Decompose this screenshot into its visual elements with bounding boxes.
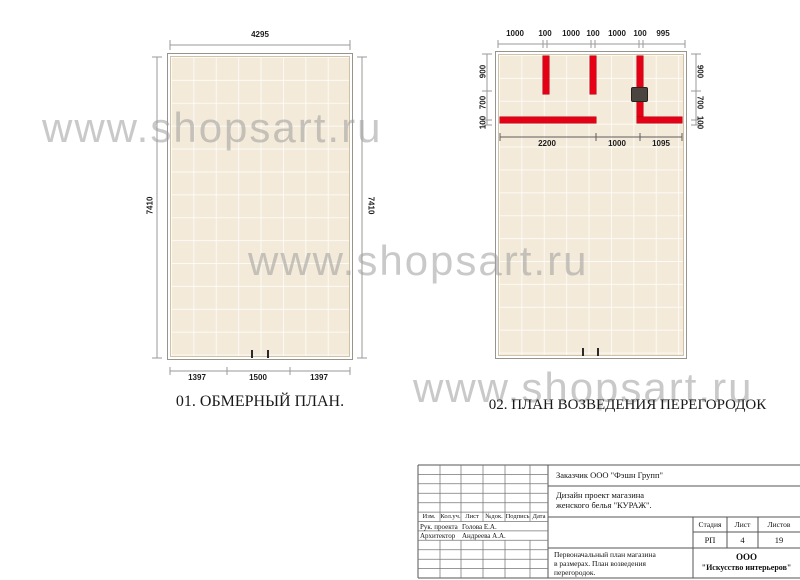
- plan1-dim-right: 7410: [367, 186, 376, 226]
- titleblock-project-line1: Дизайн проект магазина: [556, 490, 644, 500]
- plan2-dim-inner: 1095: [631, 139, 691, 148]
- plan2-walls: [495, 51, 687, 359]
- plan2-dim-right: 100: [696, 108, 705, 138]
- titleblock-col-koluch: Кол.уч.: [440, 513, 461, 520]
- titleblock-name-2: Андреева А.А.: [462, 532, 506, 540]
- plan2-partition-vertical-2: [590, 56, 596, 94]
- plan1-dim-bottom: 1500: [233, 373, 283, 382]
- plan1-dim-bottom: 1397: [294, 373, 344, 382]
- titleblock-desc-line3: перегородок.: [554, 568, 595, 577]
- titleblock-stage-value: РП: [693, 535, 727, 545]
- titleblock-name-1: Голова Е.А.: [462, 523, 497, 531]
- plan2-partition-vertical-1: [543, 56, 549, 94]
- plan2-door-symbol: [631, 87, 648, 102]
- plan1-title: 01. ОБМЕРНЫЙ ПЛАН.: [140, 393, 380, 411]
- titleblock-desc-line1: Первоначальный план магазина: [554, 550, 656, 559]
- plan1-dim-bottom: 1397: [172, 373, 222, 382]
- plan2-floor: [498, 54, 684, 356]
- titleblock-company-line2: "Искусство интерьеров": [693, 563, 800, 572]
- titleblock-sheets-label: Листов: [758, 520, 800, 529]
- plan2-dim-top: 995: [646, 29, 680, 38]
- plan1-entrance-tick: [267, 350, 269, 358]
- plan2-entrance-tick: [582, 348, 584, 356]
- titleblock-company-line1: ООО: [693, 552, 800, 562]
- titleblock-col-izm: Изм.: [418, 513, 440, 520]
- plan1-floor: [170, 56, 350, 357]
- titleblock-sheet-label: Лист: [727, 520, 758, 529]
- titleblock-customer: Заказчик ООО "Фэшн Групп": [556, 470, 663, 480]
- plan2-entrance-tick: [597, 348, 599, 356]
- titleblock-col-list: Лист: [461, 513, 483, 520]
- plan2-partition-horizontal-left: [500, 117, 596, 123]
- titleblock-col-ndok: №док.: [483, 513, 505, 520]
- titleblock-role-2: Архитектор: [420, 532, 455, 540]
- plan1-dim-top: 4295: [230, 30, 290, 39]
- plan1-entrance-tick: [251, 350, 253, 358]
- plan2-dim-left: 100: [479, 108, 488, 138]
- plan2-dim-left: 900: [479, 57, 488, 87]
- titleblock-desc-line2: в размерах. План возведения: [554, 559, 646, 568]
- plan1-dim-left: 7410: [146, 186, 155, 226]
- titleblock-col-podpis: Подпись: [505, 513, 530, 520]
- titleblock-sheet-value: 4: [727, 535, 758, 545]
- titleblock-stage-label: Стадия: [693, 520, 727, 529]
- plan2-dim-inner: 2200: [517, 139, 577, 148]
- plan2-partition-horizontal-right: [637, 117, 682, 123]
- plan2-dim-top: 1000: [498, 29, 532, 38]
- titleblock-role-1: Рук. проекта: [420, 523, 458, 531]
- drawing-sheet: www.shopsart.ru www.shopsart.ru www.shop…: [0, 0, 800, 580]
- titleblock-col-data: Дата: [530, 513, 548, 520]
- plan2-dim-right: 900: [696, 57, 705, 87]
- titleblock-project-line2: женского белья "КУРАЖ".: [556, 500, 652, 510]
- titleblock-sheets-value: 19: [758, 535, 800, 545]
- plan1-walls: [167, 53, 353, 360]
- plan2-title: 02. ПЛАН ВОЗВЕДЕНИЯ ПЕРЕГОРОДОК: [455, 397, 800, 414]
